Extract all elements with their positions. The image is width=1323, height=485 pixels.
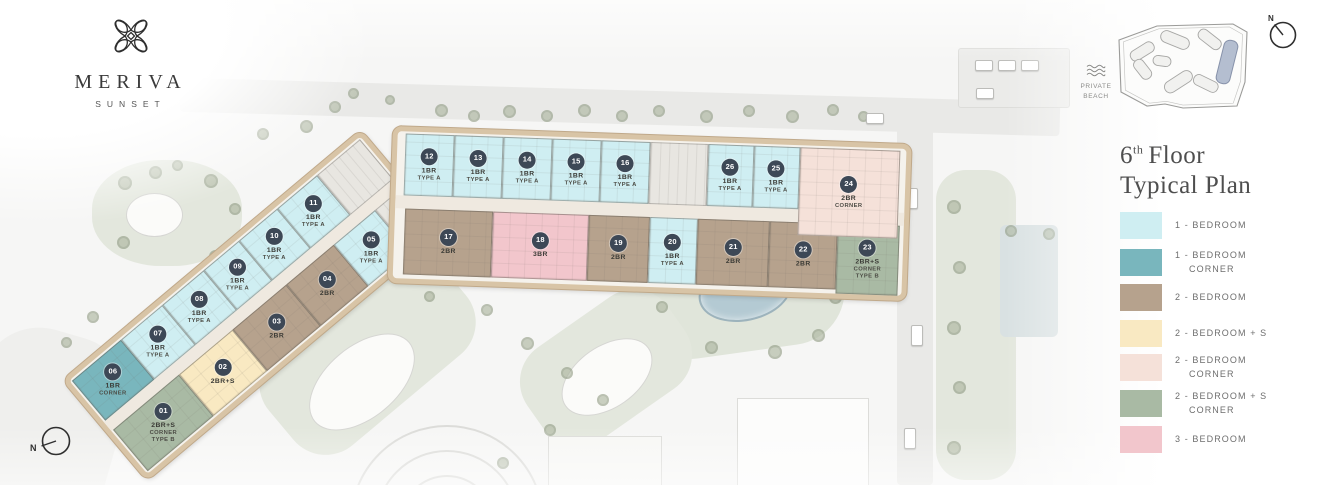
- amphitheater-arcs: [330, 415, 560, 485]
- legend-label-2br: 2 - BEDROOM: [1175, 291, 1247, 305]
- unit-17-label: 172BR: [439, 229, 456, 256]
- unit-09-label: 091BRTYPE A: [226, 259, 249, 293]
- brand-emblem-icon: [105, 10, 157, 62]
- tree-icon: [541, 110, 553, 122]
- unit-07-number-badge: 07: [150, 325, 167, 342]
- tree-icon: [578, 104, 591, 117]
- unit-19: 192BR: [587, 215, 650, 283]
- unit-11-label: 111BRTYPE A: [302, 195, 325, 229]
- unit-17: 172BR: [403, 208, 493, 277]
- unit-20-label: 201BRTYPE A: [661, 234, 684, 268]
- private-beach-line1: PRIVATE: [1074, 82, 1118, 92]
- unit-03-label: 032BR: [268, 314, 285, 341]
- tree-icon: [435, 104, 448, 117]
- tree-icon: [87, 311, 99, 323]
- unit-08-number-badge: 08: [191, 291, 208, 308]
- tree-icon: [947, 321, 961, 335]
- legend-item-2br-s: 2 - BEDROOM + S: [1120, 320, 1267, 347]
- tree-icon: [118, 176, 132, 190]
- tree-icon: [172, 160, 183, 171]
- car-icon: [904, 428, 916, 449]
- tree-icon: [497, 457, 509, 469]
- tree-icon: [329, 101, 341, 113]
- unit-25-number-badge: 25: [768, 160, 785, 177]
- compass-top-right: N: [1256, 8, 1304, 61]
- tree-icon: [385, 95, 395, 105]
- unit-01-number-badge: 01: [155, 403, 172, 420]
- unit-07-label: 071BRTYPE A: [147, 325, 170, 359]
- unit-15-label: 151BRTYPE A: [564, 153, 587, 187]
- tree-icon: [827, 104, 839, 116]
- unit-24: 242BRCORNER: [797, 147, 900, 238]
- tree-icon: [300, 120, 313, 133]
- unit-02-number-badge: 02: [215, 359, 232, 376]
- parking-lot: [958, 48, 1070, 108]
- unit-17-number-badge: 17: [439, 229, 456, 246]
- legend-label-2br-s: 2 - BEDROOM + S: [1175, 327, 1267, 341]
- car-icon: [911, 325, 923, 346]
- legend-swatch-2br-s-corner: [1120, 390, 1162, 417]
- unit-18-number-badge: 18: [531, 233, 548, 250]
- unit-16: 161BRTYPE A: [599, 140, 650, 204]
- plan-title-line1: 6thFloor: [1120, 141, 1251, 171]
- neighbor-building-1: [737, 398, 869, 485]
- brand-name: MERIVA: [58, 71, 203, 94]
- roundabout: [126, 193, 183, 237]
- tree-icon: [786, 110, 799, 123]
- unit-10-label: 101BRTYPE A: [263, 228, 286, 262]
- legend-label-2br-corner: 2 - BEDROOMCORNER: [1175, 354, 1247, 381]
- unit-12: 121BRTYPE A: [404, 133, 455, 197]
- tree-icon: [597, 394, 609, 406]
- unit-26-number-badge: 26: [722, 159, 739, 176]
- tree-icon: [348, 88, 359, 99]
- unit-06-number-badge: 06: [105, 363, 122, 380]
- unit-24-number-badge: 24: [840, 176, 857, 193]
- tree-icon: [481, 304, 493, 316]
- legend-item-3br: 3 - BEDROOM: [1120, 426, 1247, 453]
- unit-16-number-badge: 16: [617, 155, 634, 172]
- brand-logo: MERIVA SUNSET: [58, 10, 203, 109]
- car-icon: [866, 113, 884, 124]
- tree-icon: [812, 329, 825, 342]
- brand-subtitle: SUNSET: [58, 99, 203, 109]
- legend: 1 - BEDROOM1 - BEDROOMCORNER2 - BEDROOM2…: [1120, 212, 1320, 462]
- unit-21: 212BR: [696, 219, 770, 287]
- unit-03-number-badge: 03: [268, 314, 285, 331]
- legend-swatch-3br: [1120, 426, 1162, 453]
- tree-icon: [257, 128, 269, 140]
- unit-10-number-badge: 10: [266, 228, 283, 245]
- unit-13: 131BRTYPE A: [453, 135, 504, 199]
- tree-icon: [1043, 228, 1055, 240]
- legend-swatch-2br: [1120, 284, 1162, 311]
- unit-23-number-badge: 23: [859, 239, 876, 256]
- unit-21-label: 212BR: [724, 239, 741, 266]
- tree-icon: [424, 291, 435, 302]
- plan-title-line2: Typical Plan: [1120, 171, 1251, 201]
- legend-item-2br: 2 - BEDROOM: [1120, 284, 1247, 311]
- unit-08-label: 081BRTYPE A: [188, 291, 211, 325]
- unit-13-number-badge: 13: [470, 150, 487, 167]
- tree-icon: [561, 367, 573, 379]
- unit-05-label: 051BRTYPE A: [360, 231, 383, 265]
- tree-icon: [1005, 225, 1017, 237]
- unit-14: 141BRTYPE A: [502, 137, 553, 201]
- unit-21-number-badge: 21: [724, 239, 741, 256]
- tree-icon: [947, 441, 961, 455]
- unit-12-label: 121BRTYPE A: [418, 148, 441, 182]
- compass-tr-north-label: N: [1268, 14, 1274, 23]
- unit-18-label: 183BR: [531, 233, 548, 260]
- unit-20: 201BRTYPE A: [648, 217, 698, 285]
- unit-15-number-badge: 15: [568, 153, 585, 170]
- tree-icon: [743, 105, 755, 117]
- unit-02-label: 022BR+S: [211, 359, 235, 386]
- tree-icon: [468, 110, 480, 122]
- car-icon: [975, 60, 993, 71]
- unit-15: 151BRTYPE A: [550, 139, 601, 203]
- legend-item-2br-s-corner: 2 - BEDROOM + SCORNER: [1120, 390, 1267, 417]
- tree-icon: [149, 166, 162, 179]
- car-icon: [1021, 60, 1039, 71]
- private-beach-line2: BEACH: [1074, 92, 1118, 102]
- tree-icon: [700, 110, 713, 123]
- neighbor-building-2: [548, 436, 662, 485]
- unit-11-number-badge: 11: [305, 195, 322, 212]
- unit-16-label: 161BRTYPE A: [613, 155, 636, 189]
- unit-18: 183BR: [491, 212, 589, 281]
- unit-01-label: 012BR+SCORNERTYPE B: [150, 403, 178, 444]
- tree-icon: [204, 174, 218, 188]
- unit-19-number-badge: 19: [610, 235, 627, 252]
- legend-item-1br: 1 - BEDROOM: [1120, 212, 1247, 239]
- legend-item-1br-corner: 1 - BEDROOMCORNER: [1120, 249, 1247, 276]
- legend-label-1br-corner: 1 - BEDROOMCORNER: [1175, 249, 1247, 276]
- unit-26: 261BRTYPE A: [706, 144, 754, 208]
- legend-swatch-1br-corner: [1120, 249, 1162, 276]
- waves-icon: [1085, 64, 1107, 77]
- tree-icon: [656, 301, 668, 313]
- compass-bottom-left: N: [26, 422, 78, 469]
- legend-label-2br-s-corner: 2 - BEDROOM + SCORNER: [1175, 390, 1267, 417]
- car-icon: [998, 60, 1016, 71]
- service-core: [648, 142, 708, 206]
- site-key-plan: [1113, 20, 1253, 117]
- unit-04-number-badge: 04: [319, 272, 336, 289]
- building-wing-horizontal: 121BRTYPE A131BRTYPE A141BRTYPE A151BRTY…: [388, 126, 912, 301]
- legend-item-2br-corner: 2 - BEDROOMCORNER: [1120, 354, 1247, 381]
- unit-25: 251BRTYPE A: [752, 146, 800, 210]
- tree-icon: [229, 203, 241, 215]
- tree-icon: [117, 236, 130, 249]
- plan-title: 6thFloor Typical Plan: [1120, 141, 1251, 201]
- legend-label-3br: 3 - BEDROOM: [1175, 433, 1247, 447]
- floor-plan-page: 012BR+SCORNERTYPE B022BR+S032BR042BR051B…: [0, 0, 1323, 485]
- unit-25-label: 251BRTYPE A: [765, 160, 788, 194]
- legend-swatch-2br-s: [1120, 320, 1162, 347]
- unit-13-label: 131BRTYPE A: [467, 150, 490, 184]
- unit-14-number-badge: 14: [519, 152, 536, 169]
- unit-12-number-badge: 12: [421, 148, 438, 165]
- tree-icon: [521, 337, 534, 350]
- compass-bl-north-label: N: [30, 443, 37, 453]
- unit-22-label: 222BR: [794, 242, 811, 269]
- tree-icon: [616, 110, 628, 122]
- unit-26-label: 261BRTYPE A: [719, 159, 742, 193]
- legend-swatch-1br: [1120, 212, 1162, 239]
- sports-court: [1000, 225, 1058, 337]
- tree-icon: [544, 424, 556, 436]
- tree-icon: [947, 200, 961, 214]
- car-icon: [976, 88, 994, 99]
- tree-icon: [503, 105, 516, 118]
- tree-icon: [953, 381, 966, 394]
- unit-06-label: 061BRCORNER: [99, 363, 127, 397]
- unit-24-label: 242BRCORNER: [835, 176, 863, 210]
- tree-icon: [705, 341, 718, 354]
- unit-23-label: 232BR+SCORNERTYPE B: [854, 239, 882, 280]
- unit-05-number-badge: 05: [363, 231, 380, 248]
- tree-icon: [61, 337, 72, 348]
- unit-22-number-badge: 22: [794, 242, 811, 259]
- unit-14-label: 141BRTYPE A: [516, 152, 539, 186]
- tree-icon: [768, 345, 782, 359]
- legend-label-1br: 1 - BEDROOM: [1175, 219, 1247, 233]
- private-beach-label: PRIVATE BEACH: [1074, 64, 1118, 102]
- unit-04-label: 042BR: [319, 272, 336, 299]
- unit-19-label: 192BR: [610, 235, 627, 262]
- tree-icon: [653, 105, 665, 117]
- unit-20-number-badge: 20: [664, 234, 681, 251]
- legend-swatch-2br-corner: [1120, 354, 1162, 381]
- tree-icon: [953, 261, 966, 274]
- unit-09-number-badge: 09: [229, 259, 246, 276]
